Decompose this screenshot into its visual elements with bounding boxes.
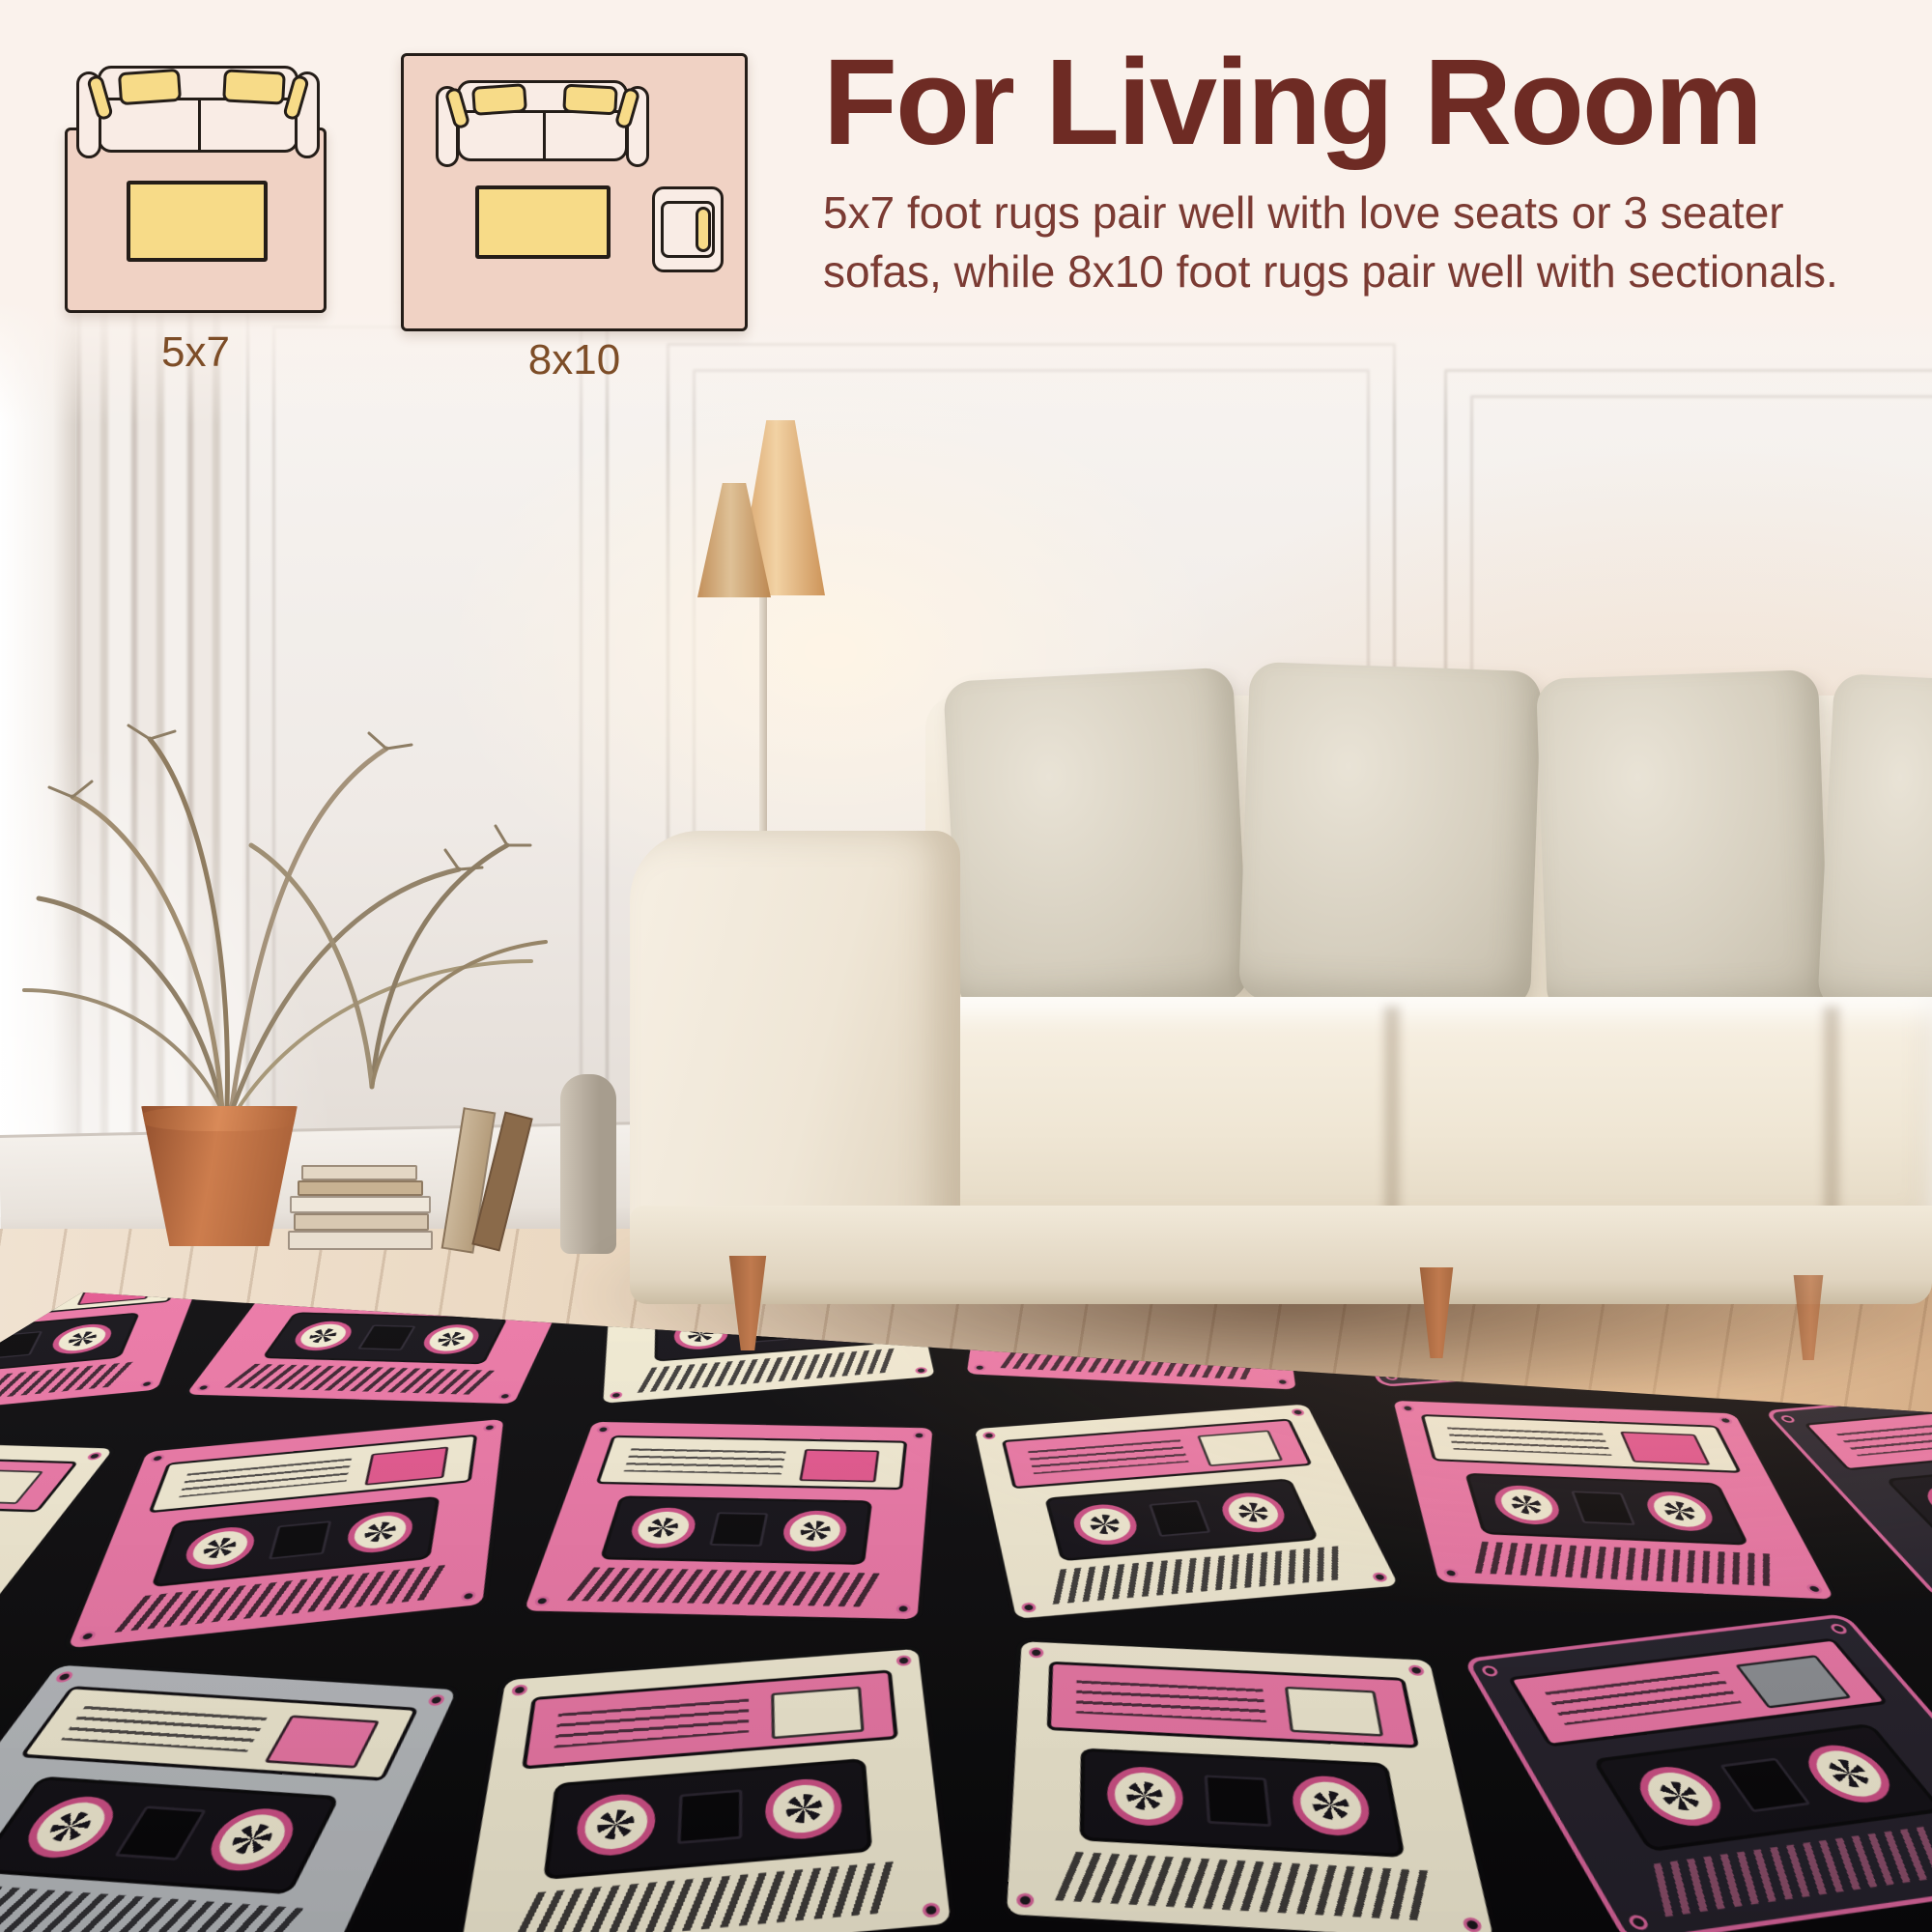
- armchair-icon: [652, 186, 724, 272]
- size-label-8x10: 8x10: [401, 336, 748, 384]
- size-label-5x7: 5x7: [65, 328, 327, 377]
- sofa-top-view-icon: [76, 66, 320, 153]
- cassette-icon: [990, 1636, 1529, 1932]
- cassette-icon: [1463, 1624, 1932, 1930]
- cassette-icon: [974, 1406, 1406, 1616]
- header-copy: For Living Room 5x7 foot rugs pair well …: [823, 39, 1905, 301]
- floor-lamp-pole: [759, 594, 767, 860]
- sofa-pillow: [1238, 662, 1542, 1009]
- description-text: 5x7 foot rugs pair well with love seats …: [823, 184, 1905, 300]
- page-title: For Living Room: [823, 39, 1905, 166]
- sofa-base: [630, 1206, 1932, 1304]
- coffee-table-icon: [127, 181, 268, 262]
- sofa-pillow: [1536, 669, 1830, 1017]
- size-guide-header: 5x7 8x10 For Living Room 5x7 foot rugs p…: [0, 0, 1932, 415]
- living-room-photo: [0, 290, 1932, 1932]
- book-stack: [288, 1157, 442, 1250]
- cassette-icon: [427, 1649, 955, 1932]
- sofa-pillow: [1817, 673, 1932, 1020]
- dried-palm-plant: [5, 671, 560, 1135]
- coffee-table-icon: [475, 185, 611, 259]
- rug-product-image: 5x7 8x10 For Living Room 5x7 foot rugs p…: [0, 0, 1932, 1932]
- cassette-icon: [0, 1662, 461, 1932]
- sofa-pillow: [943, 667, 1250, 1014]
- cassette-icon: [517, 1414, 942, 1628]
- sofa-top-view-icon: [436, 80, 649, 161]
